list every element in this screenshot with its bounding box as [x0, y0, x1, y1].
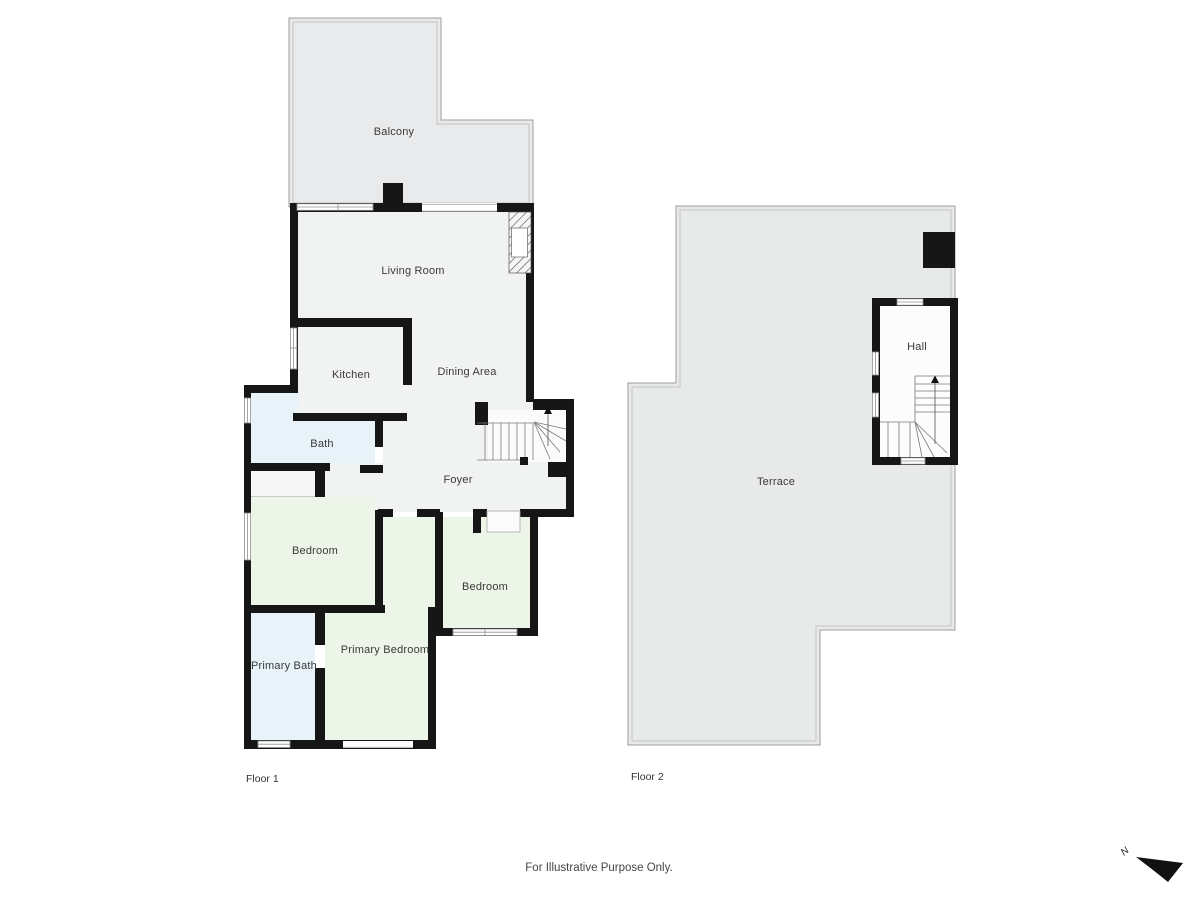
window: [297, 204, 373, 211]
room-label-hall: Hall: [907, 341, 927, 353]
north-arrow: N: [1119, 845, 1183, 882]
closet: [487, 511, 520, 532]
floor1-title: Floor 1: [246, 773, 279, 785]
fireplace: [509, 212, 531, 273]
room-label-dining-area: Dining Area: [437, 366, 496, 378]
room-label-primary-bedroom: Primary Bedroom: [341, 644, 430, 656]
room-label-primary-bath: Primary Bath: [251, 660, 317, 672]
room-label-bedroom-right: Bedroom: [462, 581, 508, 593]
room-label-bath: Bath: [310, 438, 333, 450]
floorplan-page: N Balcony Living Room Kitchen Dining Are…: [0, 0, 1200, 900]
window: [453, 629, 517, 636]
window: [897, 299, 923, 305]
north-arrow-icon: [1136, 857, 1183, 882]
room-label-terrace: Terrace: [757, 476, 795, 488]
room-label-bedroom-left: Bedroom: [292, 545, 338, 557]
window: [290, 328, 296, 369]
room-label-kitchen: Kitchen: [332, 369, 370, 381]
north-label: N: [1119, 845, 1132, 859]
floorplan-drawing: N: [0, 0, 1200, 900]
disclaimer-text: For Illustrative Purpose Only.: [525, 862, 672, 874]
window: [901, 458, 925, 464]
window: [244, 513, 250, 560]
window: [872, 393, 878, 417]
window: [244, 398, 250, 423]
chimney: [923, 232, 955, 268]
sliding-opening: [343, 741, 413, 748]
room-label-balcony: Balcony: [374, 126, 415, 138]
floor2-title: Floor 2: [631, 771, 664, 783]
balcony-outline: [289, 18, 533, 207]
room-label-foyer: Foyer: [443, 474, 472, 486]
window: [258, 741, 290, 748]
sliding-opening: [422, 203, 497, 212]
window: [872, 352, 878, 375]
room-label-living-room: Living Room: [381, 265, 444, 277]
